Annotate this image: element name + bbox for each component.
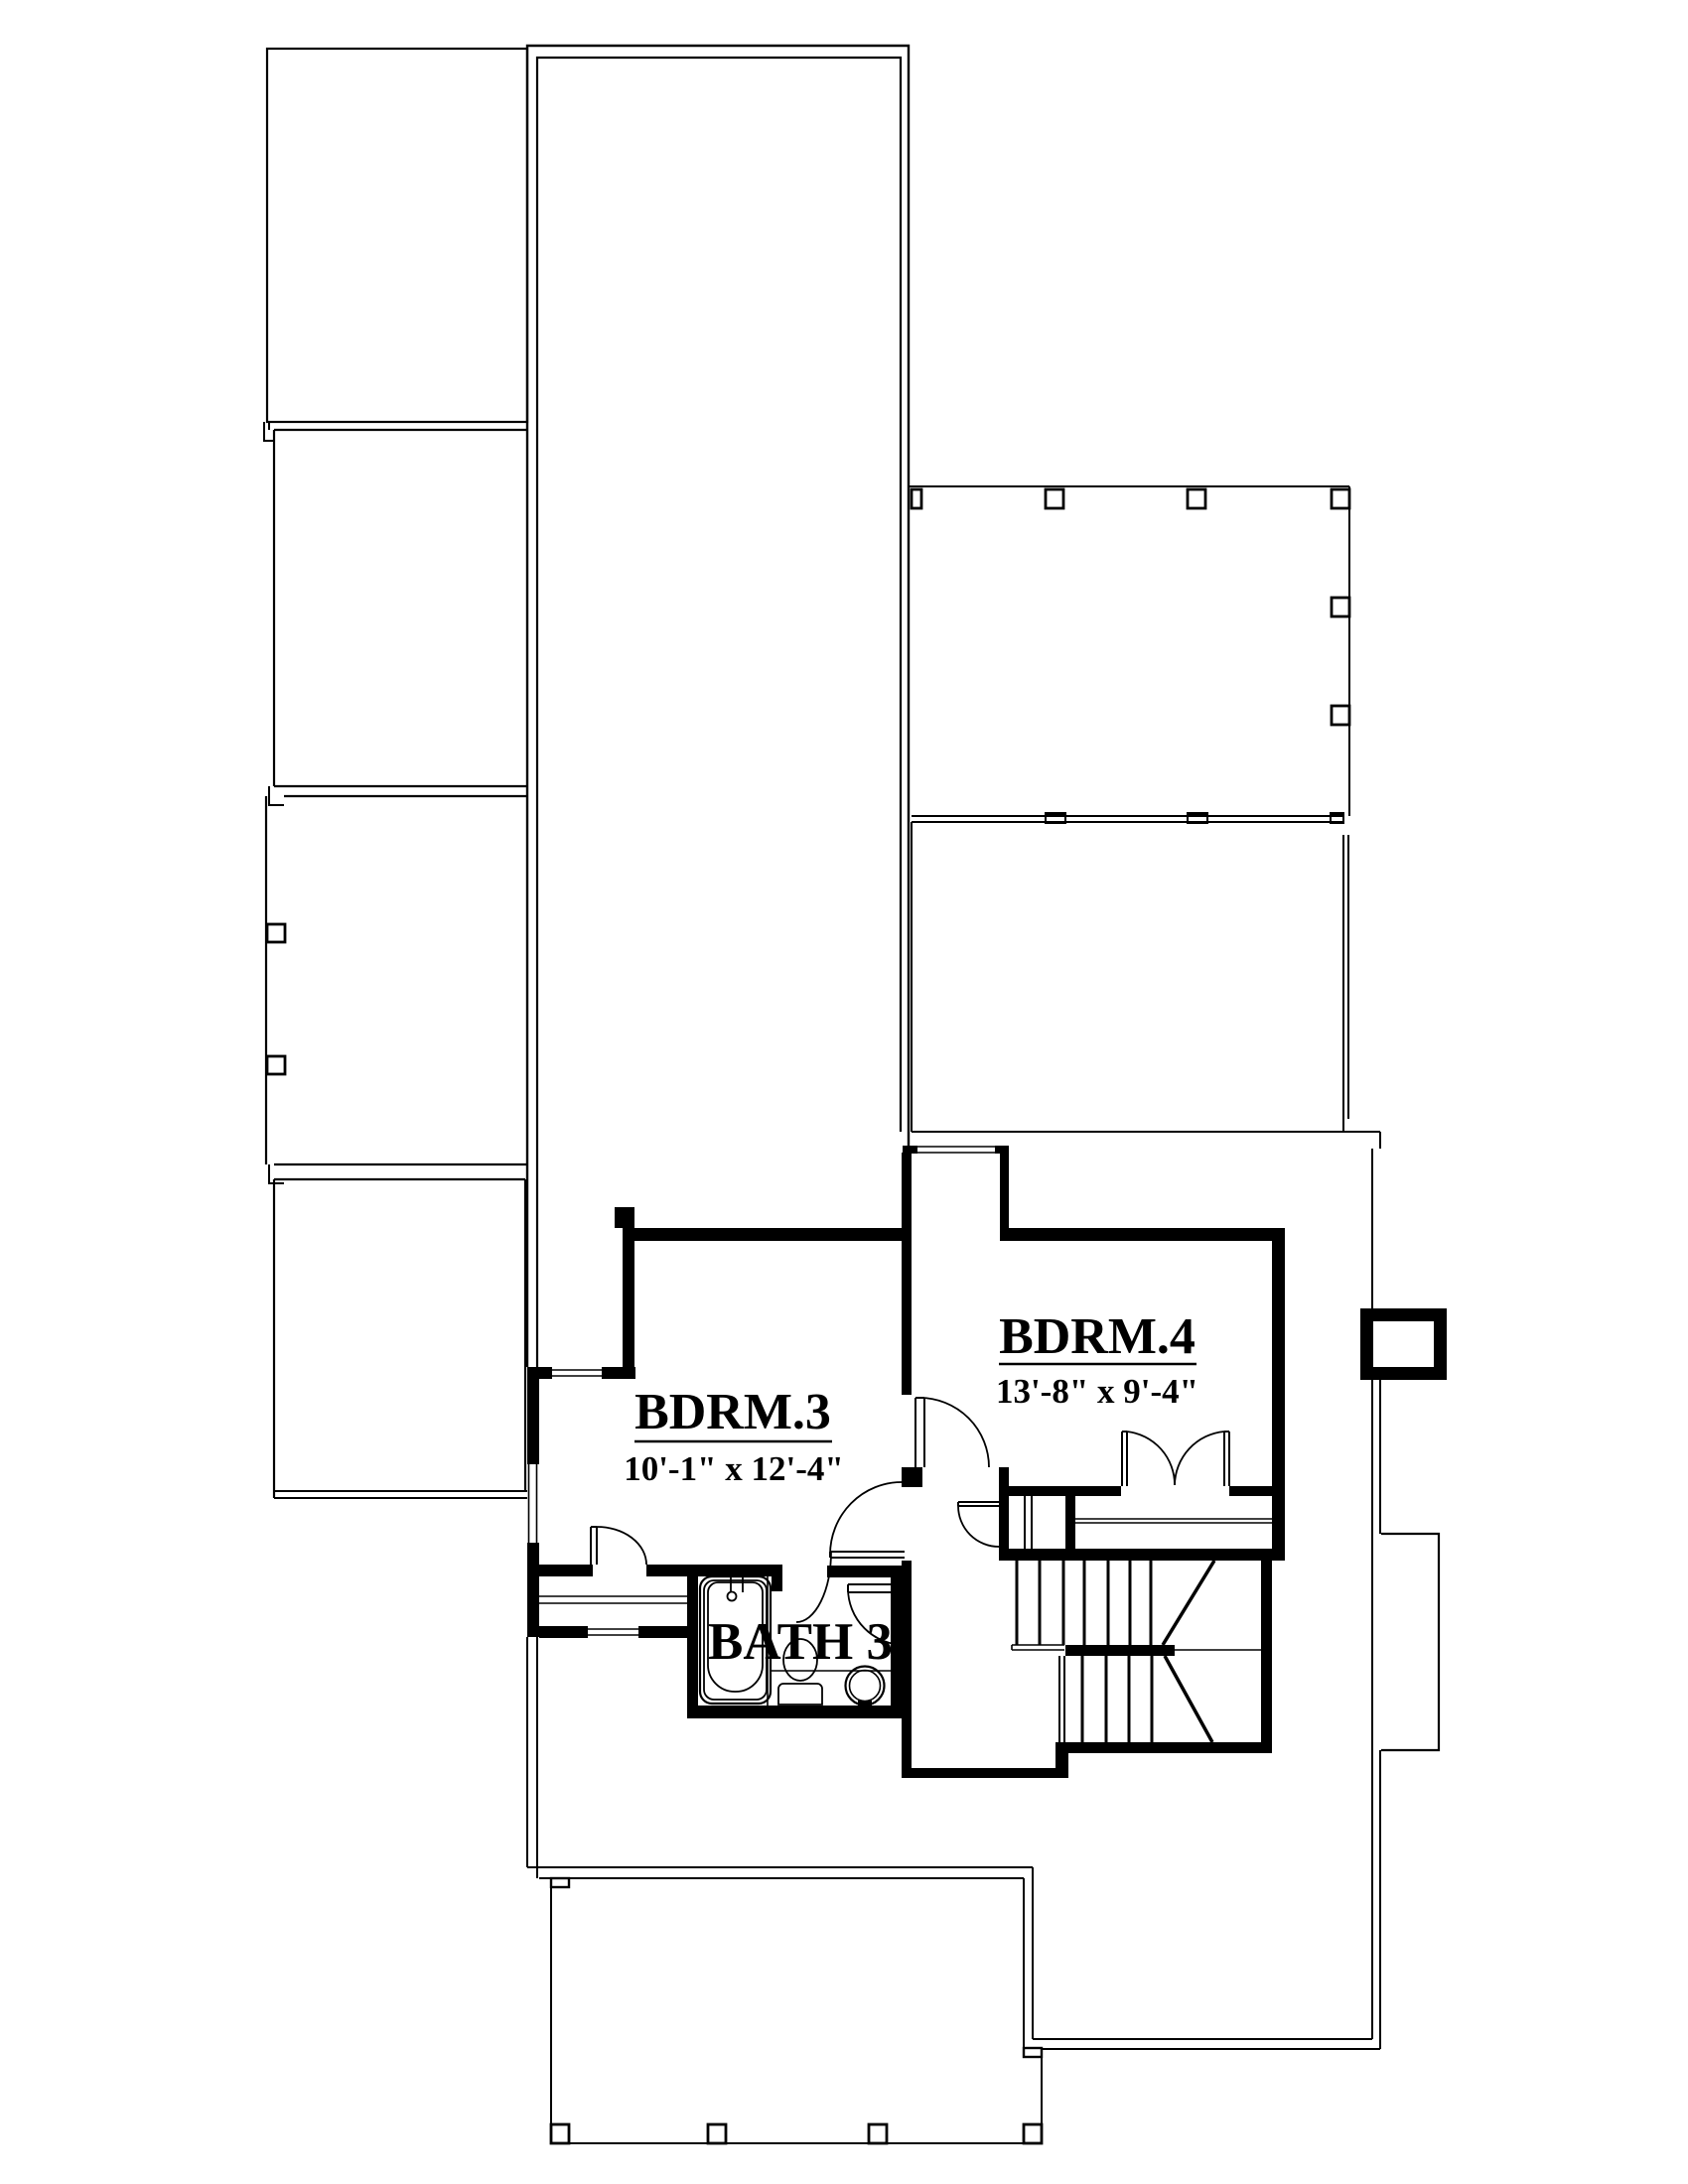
svg-text:13'-8" x 9'-4": 13'-8" x 9'-4" bbox=[996, 1372, 1198, 1411]
svg-text:BDRM.4: BDRM.4 bbox=[999, 1308, 1196, 1365]
svg-text:BATH 3: BATH 3 bbox=[708, 1613, 893, 1671]
svg-text:10'-1" x 12'-4": 10'-1" x 12'-4" bbox=[624, 1449, 844, 1488]
svg-text:BDRM.3: BDRM.3 bbox=[634, 1384, 831, 1440]
